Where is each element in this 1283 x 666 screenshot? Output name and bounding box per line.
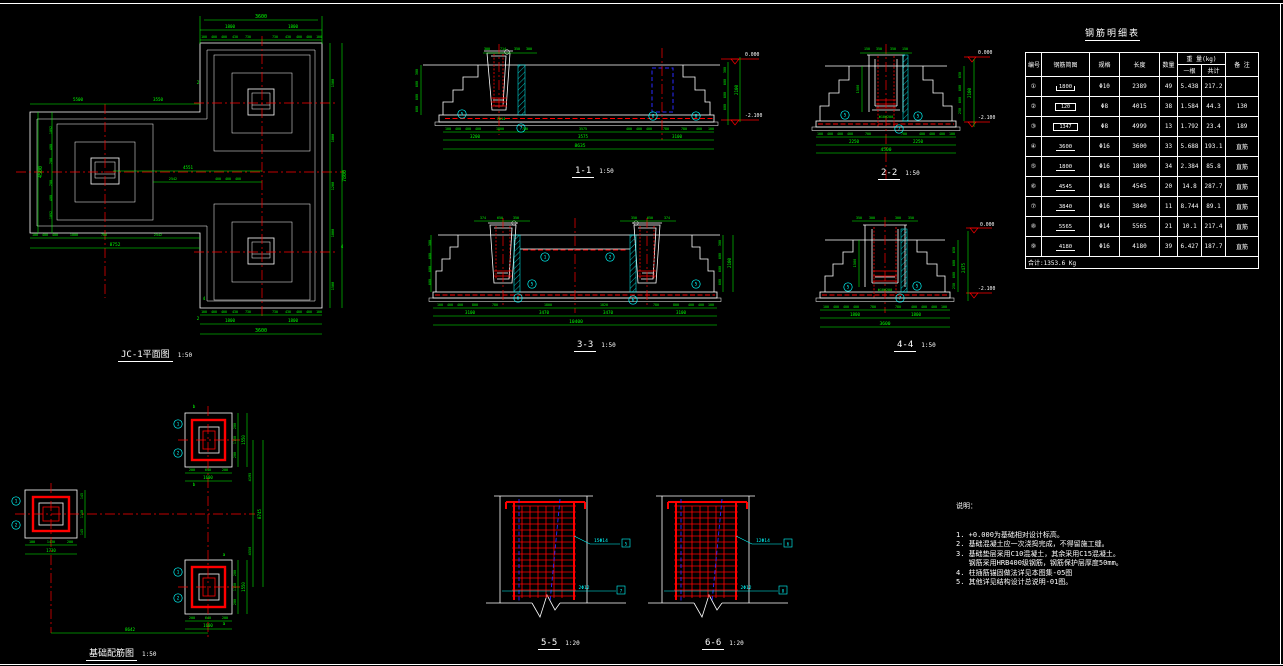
svg-text:650: 650	[958, 72, 962, 78]
svg-text:400: 400	[215, 177, 221, 181]
svg-text:3600: 3600	[255, 14, 267, 20]
svg-text:700: 700	[101, 233, 107, 237]
svg-text:400: 400	[52, 233, 58, 237]
notes-list: 1. +0.000为基础相对设计标高。2. 基础混凝土应一次浇捣完成，不得留施工…	[956, 531, 1123, 588]
svg-text:5: 5	[847, 285, 850, 291]
foundation-outline	[30, 43, 322, 308]
svg-text:a: a	[223, 553, 226, 558]
section-3-3-drawing: 3746503503506503741255661004004008007801…	[428, 213, 748, 348]
table-row: ⑤1800Φ161800342.38485.8直筋	[1026, 157, 1259, 177]
svg-text:400: 400	[626, 127, 632, 131]
svg-text:0.000: 0.000	[978, 50, 993, 56]
svg-text:400: 400	[235, 177, 241, 181]
svg-text:650: 650	[497, 216, 503, 220]
svg-text:780: 780	[653, 303, 659, 307]
section-4-4-title: 4-4	[894, 340, 916, 352]
figure-title: 5-51:20	[538, 630, 580, 649]
svg-text:600: 600	[723, 104, 727, 110]
svg-text:0.000: 0.000	[745, 52, 760, 58]
svg-text:10400: 10400	[569, 319, 583, 325]
section-3-3-title: 3-3	[574, 340, 596, 352]
notes-title: 说明：	[956, 502, 1123, 512]
svg-text:2100: 2100	[727, 257, 732, 268]
svg-text:400: 400	[225, 177, 231, 181]
svg-text:350: 350	[890, 47, 896, 51]
svg-text:780: 780	[681, 127, 687, 131]
plan-jc1-title: JC-1平面图	[118, 350, 173, 362]
figure-title: JC-1平面图1:50	[118, 342, 192, 361]
svg-text:250: 250	[952, 283, 956, 289]
svg-text:1800: 1800	[496, 127, 504, 131]
svg-text:1730: 1730	[46, 548, 56, 553]
svg-text:400: 400	[929, 132, 935, 136]
svg-text:200: 200	[222, 616, 228, 620]
svg-text:400: 400	[853, 305, 859, 309]
table-row: ④3600Φ163600335.688193.1直筋	[1026, 137, 1259, 157]
svg-text:780: 780	[522, 127, 528, 131]
svg-text:400: 400	[921, 305, 927, 309]
svg-text:3100: 3100	[465, 310, 476, 315]
dimension-lines	[25, 413, 263, 633]
annotations	[664, 536, 792, 594]
svg-text:1820: 1820	[600, 303, 608, 307]
svg-text:6: 6	[632, 298, 635, 304]
svg-text:780: 780	[870, 305, 876, 309]
svg-text:2542: 2542	[169, 177, 177, 181]
svg-text:3600: 3600	[255, 328, 267, 334]
svg-text:6: 6	[652, 114, 655, 120]
dimension-lines	[820, 221, 968, 327]
svg-text:145: 145	[80, 529, 84, 535]
note-line: 2. 基础混凝土应一次浇捣完成，不得留施工缝。	[956, 540, 1123, 550]
svg-text:2250: 2250	[849, 139, 860, 144]
svg-text:400: 400	[211, 35, 217, 39]
svg-text:700: 700	[901, 132, 907, 136]
svg-text:1: 1	[544, 255, 547, 261]
svg-text:1800: 1800	[911, 312, 922, 317]
svg-text:430: 430	[232, 35, 238, 39]
svg-text:100: 100	[316, 35, 322, 39]
svg-text:2542: 2542	[154, 233, 162, 237]
svg-text:640: 640	[205, 616, 211, 620]
svg-text:200: 200	[67, 540, 73, 544]
svg-text:2: 2	[177, 596, 180, 602]
svg-text:100: 100	[708, 303, 714, 307]
svg-text:150: 150	[864, 47, 870, 51]
col-weight-total: 共计	[1202, 65, 1226, 77]
section-5-5-title: 5-5	[538, 638, 560, 650]
svg-text:714: 714	[500, 47, 506, 51]
svg-text:2: 2	[197, 316, 200, 321]
svg-text:2100: 2100	[967, 87, 972, 98]
pad-rebar-rings	[33, 420, 225, 607]
svg-text:8745: 8745	[257, 508, 262, 519]
svg-text:400: 400	[837, 132, 843, 136]
note-line: 1. +0.000为基础相对设计标高。	[956, 531, 1123, 541]
table-row: ⑦3840Φ163840118.74489.1直筋	[1026, 197, 1259, 217]
svg-text:400: 400	[296, 35, 302, 39]
table-row: ②120Φ84015381.58444.3130	[1026, 97, 1259, 117]
svg-text:3550: 3550	[153, 97, 164, 102]
svg-text:1: 1	[177, 570, 180, 576]
svg-text:100: 100	[29, 540, 35, 544]
table-row: ⑥4545Φ1845452014.8287.7直筋	[1026, 177, 1259, 197]
svg-text:430: 430	[232, 310, 238, 314]
svg-text:730: 730	[245, 35, 251, 39]
svg-text:400: 400	[698, 303, 704, 307]
section-1-1-scale: 1:50	[599, 168, 613, 175]
svg-text:3200: 3200	[470, 134, 481, 139]
section-6-6-drawing: 12Φ142Φ1268	[648, 486, 808, 641]
svg-text:3470: 3470	[603, 310, 614, 315]
svg-text:400: 400	[636, 127, 642, 131]
plan-centerlines	[16, 36, 344, 316]
svg-text:1: 1	[177, 422, 180, 428]
col-sketch: 钢筋简图	[1042, 53, 1090, 77]
col-weight-unit: 一根	[1178, 65, 1202, 77]
svg-text:8752: 8752	[110, 242, 121, 248]
svg-text:400: 400	[847, 132, 853, 136]
svg-text:4195: 4195	[248, 473, 252, 482]
svg-text:1092: 1092	[49, 126, 53, 134]
svg-text:600: 600	[415, 81, 419, 87]
dimension-labels: 3503003003501500Φ10@20055710040040040078…	[823, 216, 995, 327]
svg-text:650: 650	[952, 247, 956, 253]
figure-title: 基础配筋图1:50	[86, 641, 156, 660]
svg-text:1600: 1600	[203, 623, 213, 628]
svg-text:100: 100	[949, 132, 955, 136]
svg-text:-2.100: -2.100	[745, 113, 762, 119]
svg-text:Φ10@200: Φ10@200	[878, 288, 892, 292]
svg-text:2: 2	[197, 80, 200, 85]
col-spec: 规格	[1090, 53, 1120, 77]
plan-rebar-title: 基础配筋图	[86, 649, 137, 661]
rebar-cage	[506, 502, 585, 600]
section-3-3-scale: 1:50	[601, 342, 615, 349]
col-remark: 备 注	[1226, 53, 1259, 77]
svg-text:374: 374	[664, 216, 670, 220]
svg-text:200: 200	[233, 570, 237, 576]
annotations	[502, 536, 630, 594]
plan-rebar-drawing: 2006402001600200115020015501001430200173…	[2, 398, 287, 666]
svg-text:400: 400	[696, 127, 702, 131]
svg-text:200: 200	[233, 599, 237, 605]
svg-text:600: 600	[952, 272, 956, 278]
svg-text:800: 800	[472, 303, 478, 307]
table-row: ⑧5565Φ1455652110.1217.4直筋	[1026, 217, 1259, 237]
table-total: 合计:1353.6 Kg	[1026, 257, 1259, 269]
column-outline	[486, 496, 626, 617]
svg-text:7800: 7800	[342, 170, 348, 182]
svg-text:350: 350	[876, 47, 882, 51]
svg-text:2250: 2250	[913, 139, 924, 144]
cup-wall-hatch	[903, 55, 908, 121]
svg-text:1500: 1500	[853, 259, 857, 268]
svg-text:1800: 1800	[225, 24, 236, 29]
svg-text:730: 730	[245, 310, 251, 314]
dimension-lines	[816, 53, 974, 153]
svg-text:145: 145	[80, 493, 84, 499]
figure-title: 2-21:50	[878, 160, 920, 179]
col-length: 长度	[1120, 53, 1160, 77]
svg-text:350: 350	[631, 216, 637, 220]
svg-text:640: 640	[205, 468, 211, 472]
svg-text:400: 400	[296, 310, 302, 314]
svg-text:400: 400	[306, 35, 312, 39]
svg-text:780: 780	[895, 305, 901, 309]
svg-text:700: 700	[49, 158, 53, 164]
svg-text:430: 430	[285, 310, 291, 314]
svg-text:3575: 3575	[579, 127, 587, 131]
col-qty: 数量	[1160, 53, 1178, 77]
svg-text:5500: 5500	[73, 97, 84, 102]
svg-text:4551: 4551	[183, 165, 194, 170]
svg-text:8: 8	[782, 589, 785, 594]
svg-text:400: 400	[221, 35, 227, 39]
svg-text:5: 5	[461, 112, 464, 118]
rebar-table: 编号 钢筋简图 规格 长度 数量 重 量(kg) 备 注 一根 共计 ①1800…	[1025, 52, 1259, 269]
section-1-1-title: 1-1	[572, 166, 594, 178]
svg-text:4: 4	[341, 244, 344, 249]
svg-text:1800: 1800	[331, 229, 335, 237]
svg-text:3600: 3600	[879, 321, 890, 327]
svg-text:400: 400	[475, 127, 481, 131]
dimension-lines	[431, 221, 733, 325]
svg-text:400: 400	[939, 132, 945, 136]
svg-text:200: 200	[233, 423, 237, 429]
notes-block: 说明： 1. +0.000为基础相对设计标高。2. 基础混凝土应一次浇捣完成，不…	[956, 483, 1123, 607]
svg-text:100: 100	[941, 305, 947, 309]
svg-text:6: 6	[517, 296, 520, 302]
svg-text:1150: 1150	[233, 583, 237, 591]
svg-text:b: b	[193, 482, 196, 488]
svg-text:650: 650	[647, 216, 653, 220]
svg-text:600: 600	[718, 266, 722, 272]
svg-text:1200: 1200	[331, 182, 335, 190]
svg-text:100: 100	[32, 233, 38, 237]
svg-text:350: 350	[908, 216, 914, 220]
svg-text:6: 6	[787, 542, 790, 547]
svg-text:780: 780	[663, 127, 669, 131]
section-4-4-scale: 1:50	[921, 342, 935, 349]
svg-text:100: 100	[708, 127, 714, 131]
section-5-5-drawing: 15Φ142Φ1257	[486, 486, 646, 641]
svg-text:600: 600	[415, 94, 419, 100]
svg-text:730: 730	[272, 310, 278, 314]
svg-text:1140: 1140	[80, 510, 84, 518]
plan-jc1-drawing: 3600180018001004004004307307304304004001…	[8, 8, 358, 358]
frame-right	[1280, 3, 1281, 665]
svg-text:5: 5	[916, 284, 919, 290]
table-footer-row: 合计:1353.6 Kg	[1026, 257, 1259, 269]
svg-text:600: 600	[958, 85, 962, 91]
svg-text:600: 600	[428, 279, 432, 285]
svg-text:350: 350	[513, 216, 519, 220]
svg-text:300: 300	[869, 216, 875, 220]
svg-text:1800: 1800	[850, 312, 861, 317]
svg-text:1800: 1800	[544, 303, 552, 307]
section-6-6-scale: 1:20	[729, 640, 743, 647]
dimension-labels: 3007143503007Φ14300600600600576810040040…	[415, 47, 762, 149]
col-no: 编号	[1026, 53, 1042, 77]
annotation-labels: 15Φ142Φ1257	[578, 538, 627, 594]
svg-text:300: 300	[484, 47, 490, 51]
svg-text:3470: 3470	[539, 310, 550, 315]
dimension-labels: 3746503503506503741255661004004008007801…	[428, 216, 732, 325]
footing-profile	[423, 50, 720, 126]
svg-text:100: 100	[445, 127, 451, 131]
table-row: ③1347Φ84999131.79223.4189	[1026, 117, 1259, 137]
svg-text:100: 100	[201, 310, 207, 314]
svg-text:400: 400	[457, 303, 463, 307]
svg-text:350: 350	[514, 47, 520, 51]
section-6-6-title: 6-6	[702, 638, 724, 650]
svg-text:200: 200	[189, 616, 195, 620]
svg-text:300: 300	[723, 67, 727, 73]
svg-text:4550: 4550	[248, 547, 252, 556]
svg-text:600: 600	[718, 253, 722, 259]
section-5-5-scale: 1:20	[565, 640, 579, 647]
cad-canvas: 3600180018001004004004307307304304004001…	[0, 0, 1283, 666]
svg-text:-2.100: -2.100	[978, 115, 995, 121]
svg-text:2: 2	[609, 255, 612, 261]
svg-text:300: 300	[718, 240, 722, 246]
column-outline	[648, 496, 788, 617]
section-4-4-drawing: 3503003003501500Φ10@20055710040040040078…	[812, 213, 997, 348]
rebar-and-centerlines	[435, 218, 715, 313]
rebar-table-title: 钢筋明细表	[1085, 26, 1140, 41]
svg-text:400: 400	[827, 132, 833, 136]
svg-text:a: a	[223, 622, 226, 627]
svg-text:400: 400	[833, 305, 839, 309]
svg-text:350: 350	[856, 216, 862, 220]
note-line: 5. 其他详见结构设计总说明-01图。	[956, 578, 1123, 588]
svg-text:15Φ14: 15Φ14	[594, 538, 608, 544]
frame-top	[0, 3, 1283, 4]
note-line: 3. 基础垫层采用C10混凝土，其余采用C15混凝土。	[956, 550, 1123, 560]
svg-text:2: 2	[177, 451, 180, 457]
svg-text:4500: 4500	[880, 147, 891, 153]
figure-title: 4-41:50	[894, 332, 936, 351]
svg-text:200: 200	[189, 468, 195, 472]
rebar-cage	[668, 502, 747, 600]
svg-text:8635: 8635	[574, 143, 585, 149]
svg-text:1500: 1500	[331, 282, 335, 290]
svg-text:1092: 1092	[49, 211, 53, 219]
svg-text:3100: 3100	[672, 134, 683, 139]
svg-text:600: 600	[952, 260, 956, 266]
svg-text:400: 400	[221, 310, 227, 314]
svg-text:800: 800	[673, 303, 679, 307]
svg-text:7: 7	[899, 296, 902, 302]
svg-text:3100: 3100	[676, 310, 687, 315]
svg-text:0.000: 0.000	[980, 222, 995, 228]
svg-text:400: 400	[688, 303, 694, 307]
svg-text:1430: 1430	[47, 540, 55, 544]
future-column-dashed	[652, 68, 673, 112]
svg-text:5: 5	[917, 114, 920, 120]
svg-text:5: 5	[695, 282, 698, 288]
svg-text:400: 400	[455, 127, 461, 131]
plan-rebar-scale: 1:50	[142, 651, 156, 658]
svg-text:700: 700	[865, 132, 871, 136]
svg-text:4: 4	[203, 296, 206, 301]
svg-text:400: 400	[49, 195, 53, 201]
svg-text:2Φ12: 2Φ12	[578, 585, 589, 591]
svg-text:1800: 1800	[331, 134, 335, 142]
svg-text:300: 300	[526, 47, 532, 51]
svg-text:600: 600	[415, 106, 419, 112]
svg-text:-2.100: -2.100	[978, 286, 995, 292]
section-2-2-title: 2-2	[878, 168, 900, 180]
svg-text:600: 600	[428, 253, 432, 259]
svg-text:100: 100	[437, 303, 443, 307]
svg-text:1550: 1550	[241, 435, 246, 445]
svg-text:1800: 1800	[288, 318, 299, 323]
pad-outlines	[25, 413, 232, 614]
svg-text:100: 100	[316, 310, 322, 314]
svg-text:4500: 4500	[38, 166, 44, 178]
figure-title: 6-61:20	[702, 630, 744, 649]
figure-title: 3-31:50	[574, 332, 616, 351]
svg-text:1800: 1800	[288, 24, 299, 29]
svg-text:2: 2	[15, 523, 18, 529]
svg-text:1800: 1800	[225, 318, 236, 323]
svg-text:600: 600	[958, 97, 962, 103]
svg-text:400: 400	[465, 127, 471, 131]
svg-text:400: 400	[42, 233, 48, 237]
svg-text:5: 5	[844, 113, 847, 119]
svg-text:1550: 1550	[241, 582, 246, 592]
svg-text:8: 8	[695, 114, 698, 120]
svg-text:600: 600	[428, 266, 432, 272]
svg-text:8642: 8642	[125, 627, 136, 632]
svg-text:400: 400	[931, 305, 937, 309]
plan-dimension-labels: 3600180018001004004004307307304304004001…	[32, 14, 348, 334]
figure-title: 1-11:50	[572, 158, 614, 177]
svg-text:7Φ14: 7Φ14	[497, 117, 506, 121]
svg-text:780: 780	[492, 303, 498, 307]
svg-text:200: 200	[233, 452, 237, 458]
svg-text:400: 400	[306, 310, 312, 314]
svg-text:400: 400	[646, 127, 652, 131]
svg-text:Φ10@200: Φ10@200	[879, 115, 893, 119]
svg-text:300: 300	[895, 216, 901, 220]
svg-text:300: 300	[415, 69, 419, 75]
svg-text:100: 100	[823, 305, 829, 309]
svg-text:400: 400	[211, 310, 217, 314]
annotation-labels: 12Φ142Φ1268	[740, 538, 789, 594]
svg-text:374: 374	[480, 216, 486, 220]
svg-text:400: 400	[843, 305, 849, 309]
svg-text:100: 100	[817, 132, 823, 136]
svg-text:1: 1	[15, 499, 18, 505]
cup-wall-hatch	[901, 229, 907, 292]
svg-text:400: 400	[919, 132, 925, 136]
plan-jc1-scale: 1:50	[178, 352, 192, 359]
table-header-row: 编号 钢筋简图 规格 长度 数量 重 量(kg) 备 注	[1026, 53, 1259, 65]
svg-text:1000: 1000	[70, 233, 78, 237]
svg-text:300: 300	[428, 240, 432, 246]
svg-text:250: 250	[958, 108, 962, 114]
svg-text:700: 700	[49, 180, 53, 186]
plan-dimension-lines	[30, 16, 342, 334]
svg-text:5: 5	[531, 282, 534, 288]
table-row: ⑨4180Φ164180396.427187.7直筋	[1026, 237, 1259, 257]
svg-text:12Φ14: 12Φ14	[756, 538, 770, 544]
svg-text:3575: 3575	[578, 134, 589, 139]
svg-text:400: 400	[911, 305, 917, 309]
